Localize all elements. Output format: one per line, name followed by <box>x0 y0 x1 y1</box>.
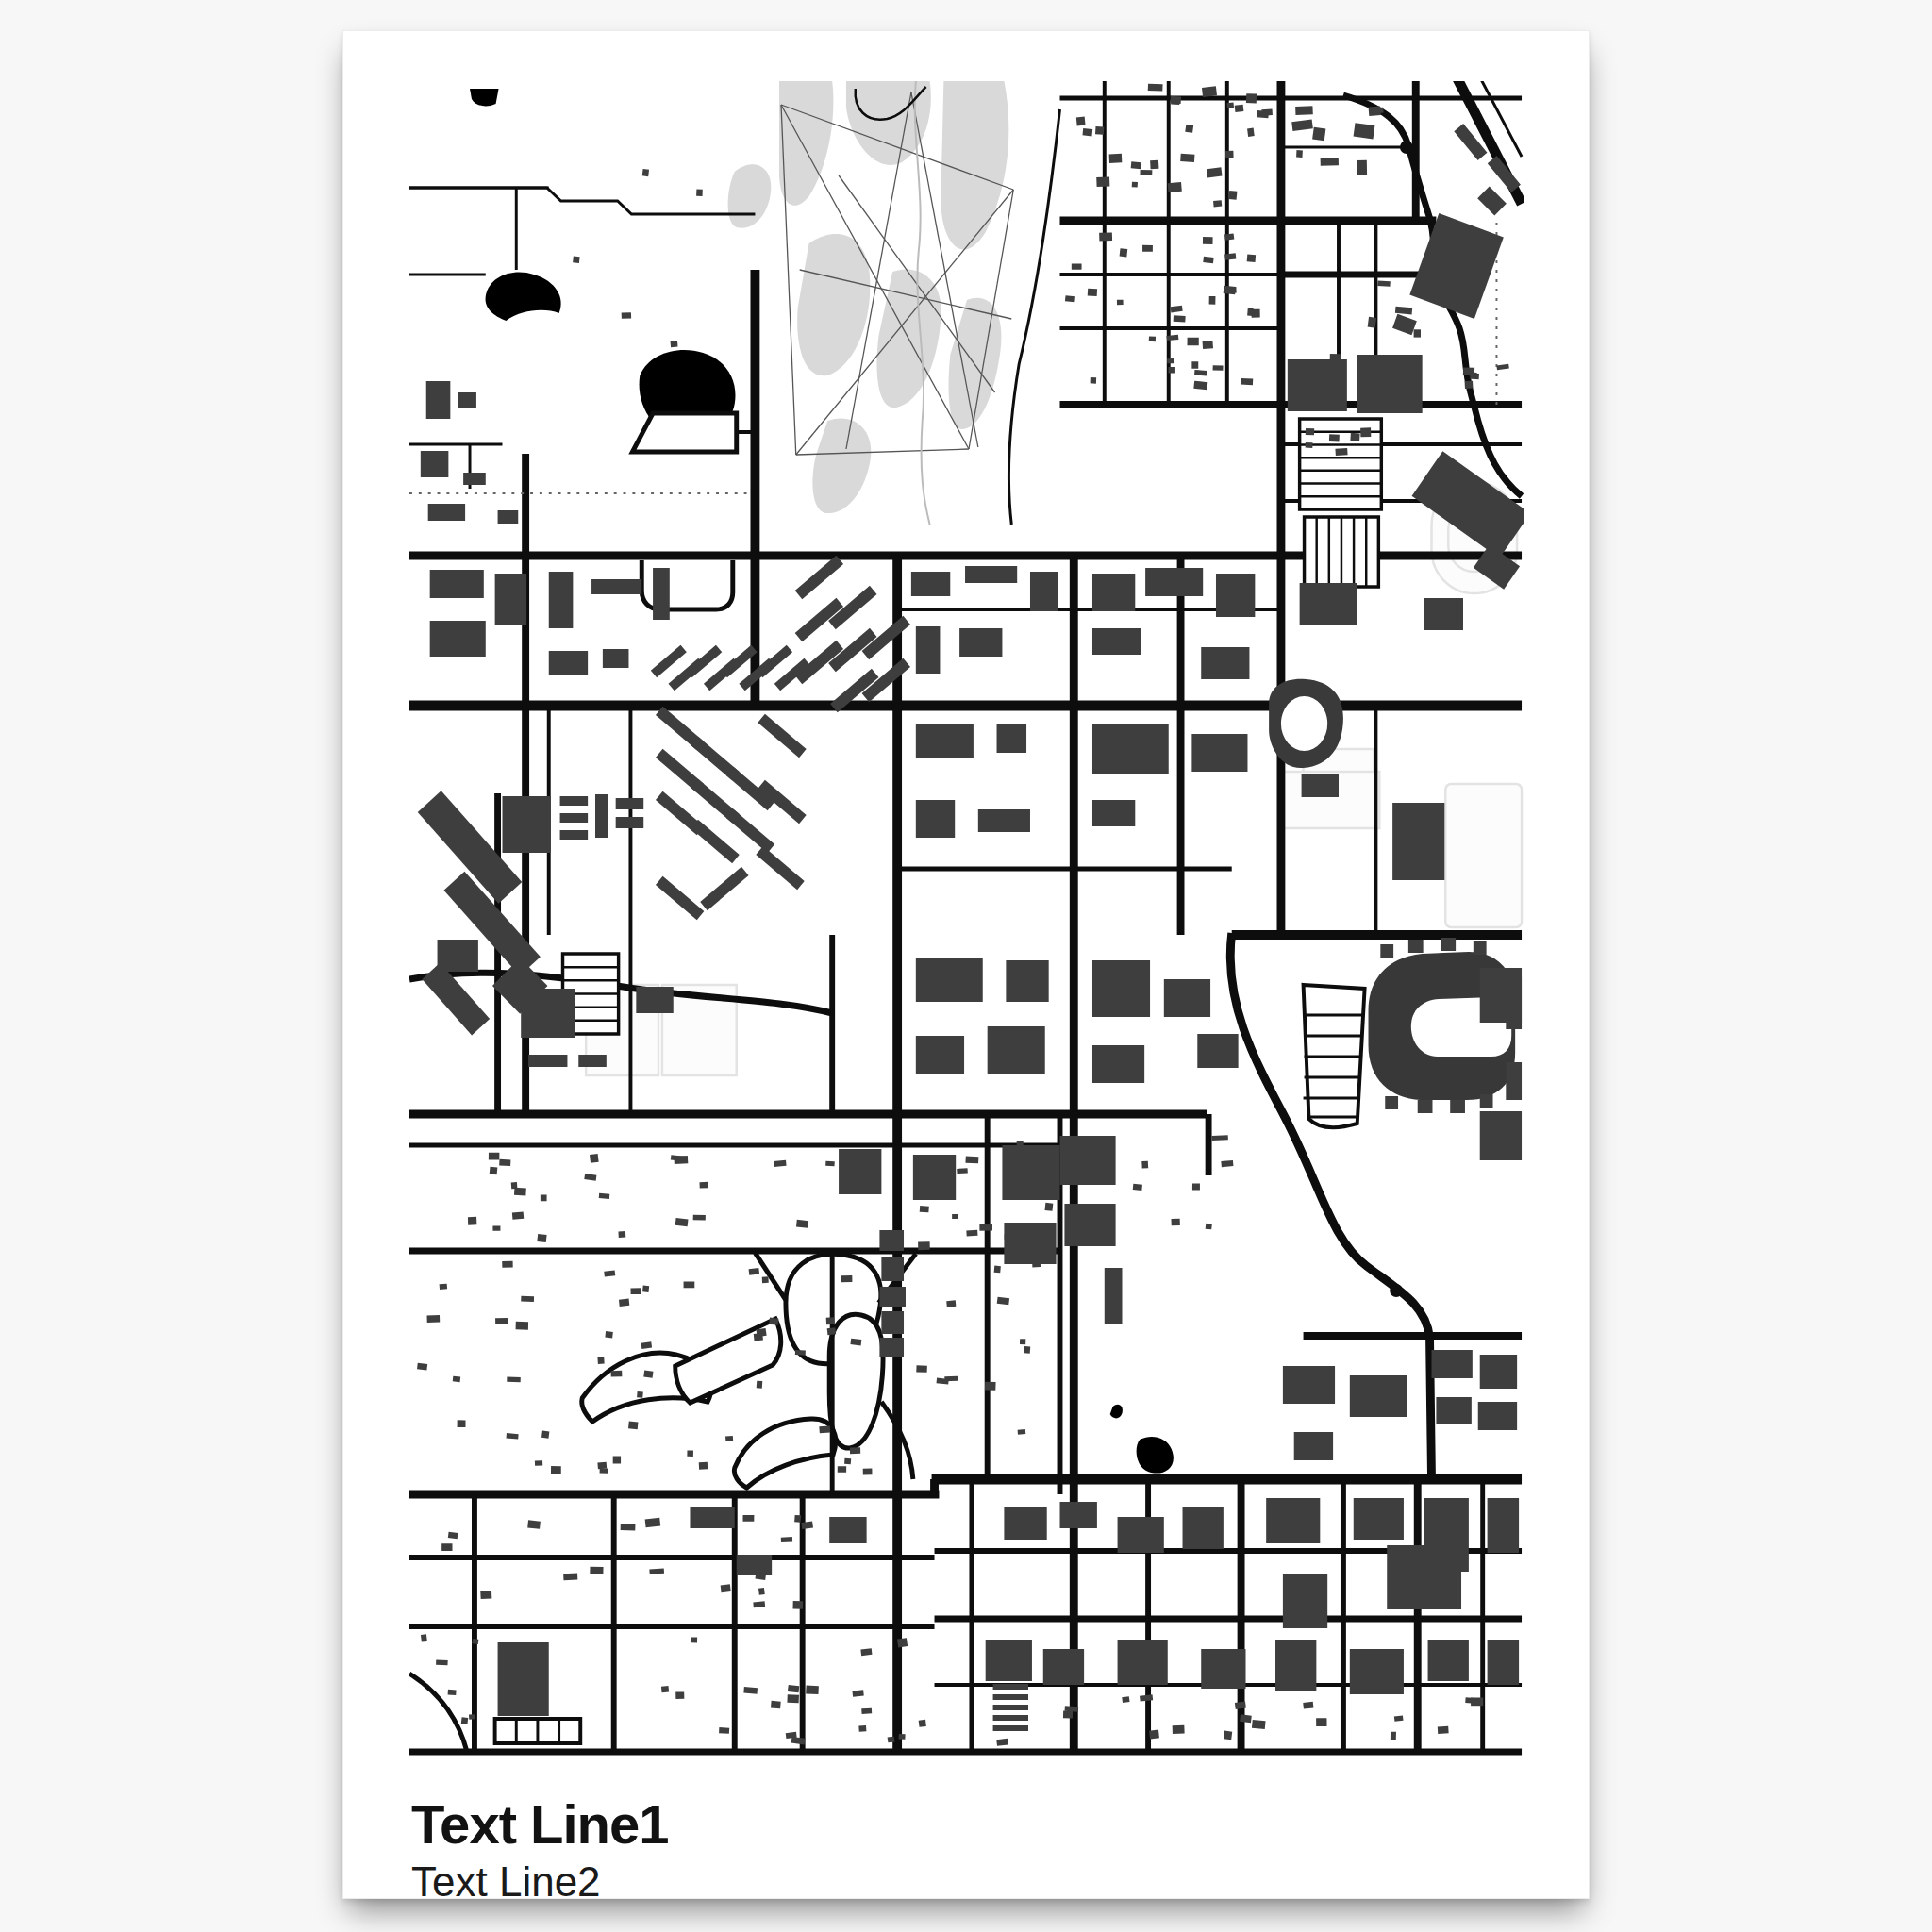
mockup-background: Text Line1 Text Line2 <box>0 0 1932 1932</box>
poster-subtitle: Text Line2 <box>411 1861 669 1903</box>
city-map <box>409 81 1524 1758</box>
poster-caption: Text Line1 Text Line2 <box>411 1797 669 1903</box>
poster-title: Text Line1 <box>411 1797 669 1852</box>
map-poster: Text Line1 Text Line2 <box>342 30 1590 1899</box>
map-canvas <box>409 81 1524 1758</box>
park-layer <box>728 81 1009 513</box>
